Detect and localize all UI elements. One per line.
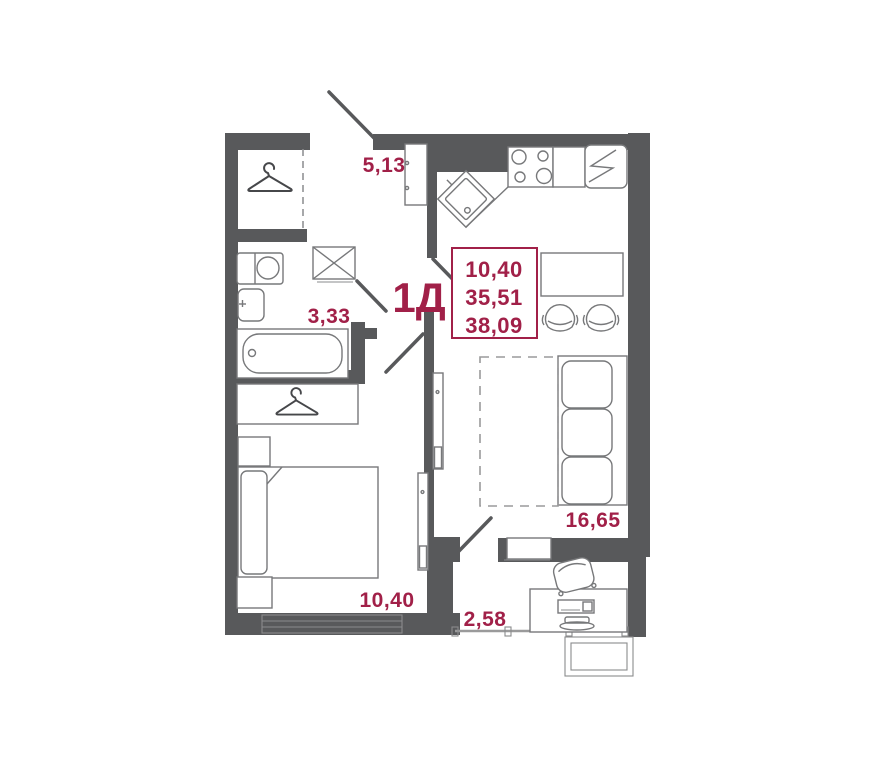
wall-right bbox=[628, 133, 650, 557]
hallway-cabinet bbox=[405, 144, 427, 205]
bed bbox=[238, 467, 378, 578]
corner-sink bbox=[433, 166, 495, 228]
chair bbox=[542, 305, 577, 331]
wall-bathroom-stub bbox=[351, 328, 377, 339]
bedroom-area-label: 10,40 bbox=[359, 589, 414, 612]
dining-table bbox=[541, 253, 623, 296]
area-info-box: 10,40 35,51 38,09 bbox=[452, 248, 537, 338]
bathroom-area-label: 3,33 bbox=[308, 305, 351, 328]
wall-kitchen-block bbox=[427, 135, 508, 172]
nightstand-bottom bbox=[237, 577, 272, 608]
balcony-door-swing bbox=[459, 518, 491, 551]
area-total-value: 38,09 bbox=[465, 313, 523, 338]
bathroom-door-swing bbox=[357, 281, 386, 311]
sink-vanity bbox=[237, 253, 283, 284]
bedroom bbox=[237, 384, 428, 608]
living-room-area-label: 16,65 bbox=[565, 509, 620, 532]
tv-unit-bedroom bbox=[418, 473, 428, 570]
area-living-value: 10,40 bbox=[465, 257, 523, 282]
entry-closet bbox=[248, 149, 303, 228]
hallway-area-label: 5,13 bbox=[363, 154, 406, 177]
bathtub bbox=[237, 329, 348, 378]
area-no-balcony-value: 35,51 bbox=[465, 285, 523, 310]
wall-bedroom-bottom bbox=[225, 613, 460, 635]
future-bed-dashed bbox=[480, 357, 558, 506]
bedroom-door-swing bbox=[386, 334, 423, 372]
tv-unit-living bbox=[433, 373, 443, 469]
toilet-unit bbox=[238, 289, 264, 321]
exterior-window-box bbox=[565, 637, 633, 676]
nightstand-top bbox=[238, 437, 270, 466]
balcony-cabinet bbox=[504, 538, 551, 560]
hanger-icon bbox=[248, 163, 291, 191]
living-room bbox=[433, 356, 627, 506]
wardrobe bbox=[237, 384, 358, 424]
unit-type-label: 1Д bbox=[392, 274, 445, 321]
floor-plan-page: 10,40 35,51 38,09 1Д 5,13 3,33 10,40 16,… bbox=[0, 0, 878, 768]
dining bbox=[541, 253, 623, 331]
balcony-area-label: 2,58 bbox=[464, 608, 507, 631]
kitchen-counter bbox=[553, 147, 585, 187]
sofa bbox=[558, 356, 627, 505]
washing-machine bbox=[313, 247, 355, 282]
desk bbox=[530, 589, 627, 632]
wall-mid-upper bbox=[427, 143, 437, 258]
wall-balcony-right bbox=[628, 557, 646, 637]
fridge bbox=[585, 145, 627, 188]
wall-closet-bathroom bbox=[225, 229, 307, 242]
floor-plan-svg: 10,40 35,51 38,09 1Д 5,13 3,33 10,40 16,… bbox=[0, 0, 878, 768]
stove bbox=[508, 147, 553, 187]
chair bbox=[583, 305, 618, 331]
entrance-door-swing bbox=[329, 92, 375, 139]
